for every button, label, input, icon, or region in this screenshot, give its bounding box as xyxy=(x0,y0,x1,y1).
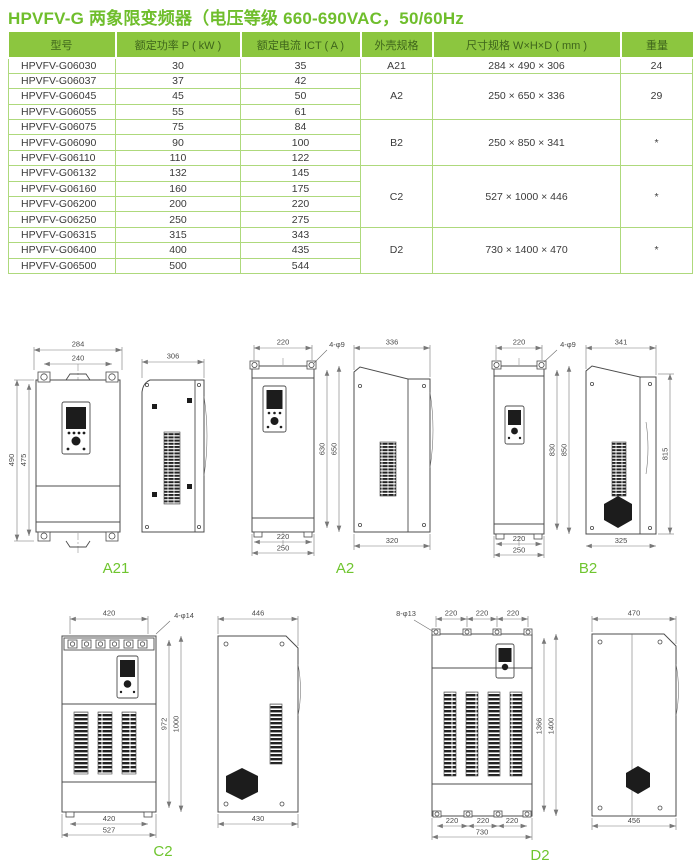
b2-front-view xyxy=(492,358,546,546)
spec-table: 型号 额定功率 P ( kW ) 额定电流 ICT ( A ) 外壳规格 尺寸规… xyxy=(8,32,693,274)
current-cell: 50 xyxy=(241,89,361,104)
dim-label: 306 xyxy=(167,352,180,361)
dim-label: 220 xyxy=(476,609,489,618)
current-cell: 61 xyxy=(241,104,361,119)
a2-side-view: 336 320 xyxy=(354,338,433,551)
model-cell: HPVFV-G06045 xyxy=(9,89,116,104)
power-cell: 30 xyxy=(116,58,241,73)
dim-label: 1000 xyxy=(172,716,181,733)
dim-label: 420 xyxy=(103,814,116,823)
power-cell: 400 xyxy=(116,243,241,258)
current-cell: 435 xyxy=(241,243,361,258)
drawing-a21: 284 240 490 475 306 xyxy=(6,334,226,558)
col-header-model: 型号 xyxy=(9,32,116,58)
col-header-power: 额定功率 P ( kW ) xyxy=(116,32,241,58)
dim-label: 470 xyxy=(628,609,641,618)
dim-label: 240 xyxy=(72,354,85,363)
dim-label: 341 xyxy=(615,338,628,347)
size-cell: 250 × 650 × 336 xyxy=(433,73,621,119)
model-cell: HPVFV-G06090 xyxy=(9,135,116,150)
model-cell: HPVFV-G06037 xyxy=(9,73,116,88)
size-cell: 730 × 1400 × 470 xyxy=(433,227,621,273)
current-cell: 42 xyxy=(241,73,361,88)
dim-label: 250 xyxy=(513,546,526,555)
power-cell: 160 xyxy=(116,181,241,196)
model-cell: HPVFV-G06400 xyxy=(9,243,116,258)
drawing-b2: 220 4-φ9 830 850 220 250 341 xyxy=(478,334,698,562)
dim-label: 220 xyxy=(507,609,520,618)
model-cell: HPVFV-G06500 xyxy=(9,258,116,273)
drawing-d2: 8-φ13 220 220 220 1366 1400 220 220 220 … xyxy=(380,606,700,846)
dim-label: 850 xyxy=(560,444,569,457)
model-cell: HPVFV-G06250 xyxy=(9,212,116,227)
dim-label: 220 xyxy=(506,816,519,825)
c2-side-view: 446 430 xyxy=(218,609,301,829)
power-cell: 250 xyxy=(116,212,241,227)
dim-label: 630 xyxy=(318,443,327,456)
col-header-weight: 重量 xyxy=(621,32,693,58)
c2-front-view xyxy=(62,636,156,817)
power-cell: 315 xyxy=(116,227,241,242)
b2-side-view: 341 815 325 xyxy=(586,338,674,547)
dim-label: 420 xyxy=(103,609,116,618)
model-cell: HPVFV-G06110 xyxy=(9,150,116,165)
dim-label: 650 xyxy=(330,443,339,456)
model-cell: HPVFV-G06200 xyxy=(9,197,116,212)
weight-cell: 24 xyxy=(621,58,693,73)
drawing-a2: 220 4-φ9 630 650 220 250 336 320 xyxy=(232,334,458,562)
dim-label: 336 xyxy=(386,338,399,347)
frame-cell: A2 xyxy=(361,73,433,119)
header-row: 型号 额定功率 P ( kW ) 额定电流 ICT ( A ) 外壳规格 尺寸规… xyxy=(9,32,693,58)
page-title: HPVFV-G 两象限变频器（电压等级 660-690VAC，50/60Hz xyxy=(8,4,464,29)
current-cell: 220 xyxy=(241,197,361,212)
dim-label: 220 xyxy=(513,338,526,347)
dim-label: 250 xyxy=(277,544,290,553)
dim-label: 4-φ9 xyxy=(560,340,576,349)
dim-label: 220 xyxy=(277,338,290,347)
dim-label: 972 xyxy=(160,718,169,731)
col-header-current: 额定电流 ICT ( A ) xyxy=(241,32,361,58)
power-cell: 90 xyxy=(116,135,241,150)
dim-label: 284 xyxy=(72,340,85,349)
current-cell: 145 xyxy=(241,166,361,181)
current-cell: 343 xyxy=(241,227,361,242)
size-cell: 250 × 850 × 341 xyxy=(433,120,621,166)
current-cell: 35 xyxy=(241,58,361,73)
power-cell: 55 xyxy=(116,104,241,119)
frame-cell: A21 xyxy=(361,58,433,73)
datasheet-page: HPVFV-G 两象限变频器（电压等级 660-690VAC，50/60Hz 型… xyxy=(0,0,700,868)
drawing-label-c2: C2 xyxy=(18,843,308,860)
dim-label: 430 xyxy=(252,814,265,823)
frame-cell: B2 xyxy=(361,120,433,166)
col-header-size: 尺寸规格 W×H×D ( mm ) xyxy=(433,32,621,58)
dim-label: 1366 xyxy=(535,718,544,735)
dim-label: 4-φ9 xyxy=(329,340,345,349)
weight-cell: * xyxy=(621,166,693,228)
model-cell: HPVFV-G06160 xyxy=(9,181,116,196)
current-cell: 275 xyxy=(241,212,361,227)
power-cell: 110 xyxy=(116,150,241,165)
dim-label: 4-φ14 xyxy=(174,611,194,620)
drawing-label-b2: B2 xyxy=(478,560,698,577)
dim-label: 220 xyxy=(513,534,526,543)
current-cell: 544 xyxy=(241,258,361,273)
a21-side-view: 306 xyxy=(142,352,207,533)
table-row: HPVFV-G06037 37 42 A2 250 × 650 × 336 29 xyxy=(9,73,693,88)
model-cell: HPVFV-G06132 xyxy=(9,166,116,181)
dim-label: 730 xyxy=(476,828,489,837)
current-cell: 175 xyxy=(241,181,361,196)
dim-label: 456 xyxy=(628,816,641,825)
dim-label: 815 xyxy=(661,448,670,461)
dim-label: 8-φ13 xyxy=(396,609,416,618)
model-cell: HPVFV-G06075 xyxy=(9,120,116,135)
power-cell: 75 xyxy=(116,120,241,135)
col-header-frame: 外壳规格 xyxy=(361,32,433,58)
frame-cell: D2 xyxy=(361,227,433,273)
power-cell: 200 xyxy=(116,197,241,212)
dim-label: 220 xyxy=(477,816,490,825)
dim-label: 220 xyxy=(277,532,290,541)
a2-front-view xyxy=(250,358,316,546)
dim-label: 475 xyxy=(19,454,28,467)
d2-front-view xyxy=(432,629,532,817)
current-cell: 122 xyxy=(241,150,361,165)
model-cell: HPVFV-G06315 xyxy=(9,227,116,242)
dim-label: 490 xyxy=(7,454,16,467)
frame-cell: C2 xyxy=(361,166,433,228)
dim-label: 830 xyxy=(548,444,557,457)
size-cell: 527 × 1000 × 446 xyxy=(433,166,621,228)
dim-label: 220 xyxy=(445,609,458,618)
dim-label: 527 xyxy=(103,826,116,835)
a21-front-view xyxy=(36,364,120,554)
power-cell: 37 xyxy=(116,73,241,88)
dim-label: 320 xyxy=(386,536,399,545)
model-cell: HPVFV-G06030 xyxy=(9,58,116,73)
power-cell: 500 xyxy=(116,258,241,273)
table-row: HPVFV-G06075 75 84 B2 250 × 850 × 341 * xyxy=(9,120,693,135)
power-cell: 132 xyxy=(116,166,241,181)
power-cell: 45 xyxy=(116,89,241,104)
drawing-c2: 420 4-φ14 972 1000 420 527 446 430 xyxy=(18,606,308,844)
table-row: HPVFV-G06315 315 343 D2 730 × 1400 × 470… xyxy=(9,227,693,242)
size-cell: 284 × 490 × 306 xyxy=(433,58,621,73)
weight-cell: * xyxy=(621,227,693,273)
dim-label: 446 xyxy=(252,609,265,618)
dim-label: 220 xyxy=(446,816,459,825)
drawing-label-d2: D2 xyxy=(380,847,700,864)
weight-cell: 29 xyxy=(621,73,693,119)
model-cell: HPVFV-G06055 xyxy=(9,104,116,119)
table-row: HPVFV-G06030 30 35 A21 284 × 490 × 306 2… xyxy=(9,58,693,73)
dim-label: 1400 xyxy=(547,718,556,735)
dim-label: 325 xyxy=(615,536,628,545)
drawing-label-a2: A2 xyxy=(232,560,458,577)
d2-side-view: 470 456 xyxy=(592,609,679,831)
weight-cell: * xyxy=(621,120,693,166)
current-cell: 100 xyxy=(241,135,361,150)
current-cell: 84 xyxy=(241,120,361,135)
table-row: HPVFV-G06132 132 145 C2 527 × 1000 × 446… xyxy=(9,166,693,181)
drawing-label-a21: A21 xyxy=(6,560,226,577)
